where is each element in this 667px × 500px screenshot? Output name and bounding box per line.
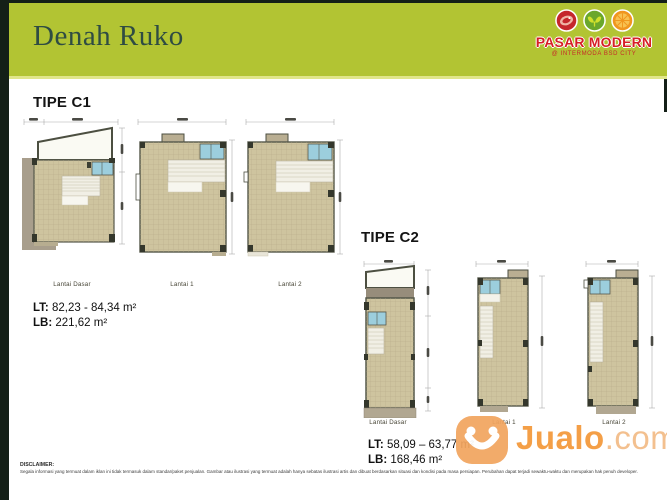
entry-apron — [480, 406, 508, 412]
c1-label-lantai-1: Lantai 1 — [145, 281, 219, 288]
c2-label-lantai-1: Lantai 1 — [467, 419, 541, 426]
c2-lb-line: LB: 168,46 m² — [368, 453, 474, 468]
brand-logo: PASAR MODERN @ INTERMODA BSD CITY — [529, 9, 659, 57]
floorplan-drawing — [566, 256, 662, 418]
tipe-c1-heading: TIPE C1 — [33, 94, 91, 111]
lb-label: LB: — [368, 454, 387, 466]
floorplan-drawing — [456, 256, 552, 418]
c1-lb-line: LB: 221,62 m² — [33, 316, 136, 331]
lt-label: LT: — [368, 439, 384, 451]
lt-value: 58,09 – 63,77 m² — [387, 439, 474, 451]
page-title: Denah Ruko — [33, 20, 184, 53]
disclaimer-body: Segala informasi yang termuat dalam ikla… — [20, 469, 638, 474]
c2-lt-line: LT: 58,09 – 63,77 m² — [368, 438, 474, 453]
lt-label: LT: — [33, 302, 49, 314]
lb-value: 168,46 m² — [390, 454, 442, 466]
lb-label: LB: — [33, 317, 52, 329]
c1-floorplan-lantai-1 — [128, 114, 236, 266]
c1-label-lantai-2: Lantai 2 — [253, 281, 327, 288]
c1-floorplan-lantai-2 — [236, 114, 344, 266]
floorplan-drawing — [340, 256, 436, 418]
c2-floorplan-lantai-1 — [456, 256, 552, 418]
citrus-icon — [611, 9, 634, 32]
meat-icon — [555, 9, 578, 32]
stairs-area — [590, 302, 603, 362]
floorplan-drawing — [18, 114, 126, 266]
leaf-icon — [583, 9, 606, 32]
floorplan-drawing — [128, 114, 236, 266]
canopy-area — [366, 266, 414, 288]
lt-value: 82,23 - 84,34 m² — [52, 302, 136, 314]
c2-label-lantai-dasar: Lantai Dasar — [351, 419, 425, 426]
c2-area-info: LT: 58,09 – 63,77 m² LB: 168,46 m² — [368, 438, 474, 468]
lb-value: 221,62 m² — [55, 317, 107, 329]
c2-floorplan-lantai-dasar — [340, 256, 436, 418]
tipe-c2-heading: TIPE C2 — [361, 229, 419, 246]
stairs-area — [368, 328, 384, 354]
c2-label-lantai-2: Lantai 2 — [577, 419, 651, 426]
brand-name: PASAR MODERN — [529, 34, 659, 50]
floorplan-drawing — [236, 114, 344, 266]
c1-lt-line: LT: 82,23 - 84,34 m² — [33, 301, 136, 316]
c2-floorplan-lantai-2 — [566, 256, 662, 418]
brand-icon-row — [529, 9, 659, 32]
stairs-area — [480, 306, 493, 358]
entry-apron — [596, 406, 636, 414]
canopy-area — [38, 128, 112, 160]
c1-area-info: LT: 82,23 - 84,34 m² LB: 221,62 m² — [33, 301, 136, 331]
entry-apron — [364, 408, 416, 418]
flyer-page: Denah Ruko — [0, 0, 667, 500]
disclaimer-title: DISCLAIMER: — [20, 462, 54, 468]
c1-floorplan-lantai-dasar — [18, 114, 126, 266]
header-band: Denah Ruko — [9, 3, 667, 79]
c1-label-lantai-dasar: Lantai Dasar — [35, 281, 109, 288]
brand-subtitle: @ INTERMODA BSD CITY — [529, 51, 659, 57]
bathroom-area — [92, 162, 113, 175]
frame-left — [0, 0, 9, 500]
